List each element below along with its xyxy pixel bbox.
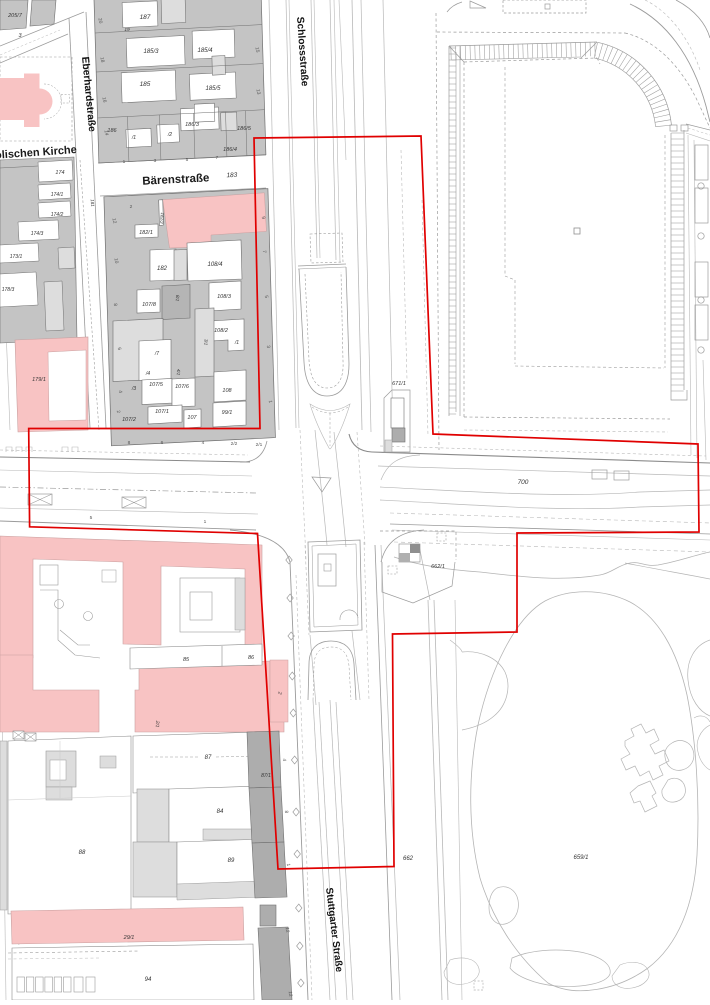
- svg-text:108/2: 108/2: [214, 328, 228, 334]
- svg-text:178/3: 178/3: [2, 287, 15, 293]
- svg-text:/7: /7: [154, 351, 159, 357]
- svg-text:2/1: 2/1: [154, 720, 161, 728]
- svg-text:29/1: 29/1: [123, 935, 135, 941]
- svg-text:107/5: 107/5: [149, 382, 164, 388]
- svg-text:6: 6: [161, 440, 164, 446]
- svg-text:659/1: 659/1: [573, 855, 588, 861]
- svg-text:186/5: 186/5: [237, 126, 252, 132]
- svg-text:181: 181: [90, 199, 95, 207]
- svg-text:7: 7: [216, 155, 219, 161]
- svg-text:2: 2: [130, 204, 133, 210]
- svg-text:94: 94: [145, 977, 152, 983]
- svg-text:3: 3: [154, 158, 157, 164]
- svg-text:4/1: 4/1: [176, 369, 182, 376]
- svg-text:173/1: 173/1: [10, 254, 23, 260]
- svg-text:107/8: 107/8: [142, 302, 157, 308]
- svg-text:182/1: 182/1: [139, 230, 153, 236]
- svg-text:183: 183: [226, 172, 238, 180]
- svg-text:174/1: 174/1: [51, 192, 64, 198]
- svg-text:12: 12: [284, 927, 290, 933]
- svg-text:174: 174: [55, 170, 64, 176]
- svg-text:108: 108: [222, 388, 232, 394]
- svg-text:182/2: 182/2: [159, 212, 165, 224]
- svg-text:174/2: 174/2: [51, 212, 64, 218]
- svg-text:/1: /1: [234, 340, 239, 346]
- svg-text:108/4: 108/4: [207, 262, 223, 268]
- svg-text:187: 187: [140, 14, 151, 21]
- svg-text:186/3: 186/3: [185, 122, 200, 128]
- svg-text:/4: /4: [145, 371, 150, 377]
- svg-text:8/1: 8/1: [175, 295, 181, 302]
- svg-text:84: 84: [217, 809, 224, 815]
- svg-text:185/4: 185/4: [197, 48, 213, 54]
- svg-text:662: 662: [403, 856, 414, 862]
- svg-text:174/3: 174/3: [31, 231, 44, 237]
- svg-text:/3: /3: [131, 386, 136, 392]
- svg-text:3/1: 3/1: [203, 339, 209, 346]
- svg-text:1: 1: [204, 519, 207, 525]
- svg-text:4: 4: [202, 440, 205, 446]
- svg-text:5: 5: [90, 515, 93, 521]
- svg-text:662/1: 662/1: [431, 564, 445, 570]
- svg-text:89: 89: [228, 858, 235, 864]
- svg-text:12: 12: [287, 991, 293, 997]
- svg-text:/1: /1: [131, 135, 136, 141]
- svg-text:2/2: 2/2: [231, 441, 238, 447]
- svg-text:108/3: 108/3: [217, 294, 232, 300]
- svg-text:205/7: 205/7: [7, 13, 23, 19]
- svg-text:185/5: 185/5: [205, 86, 221, 92]
- svg-text:185/3: 185/3: [143, 49, 159, 55]
- svg-text:2/1: 2/1: [256, 442, 263, 448]
- svg-text:107/1: 107/1: [155, 409, 169, 415]
- svg-text:85: 85: [183, 657, 190, 663]
- svg-text:182: 182: [157, 266, 168, 272]
- svg-text:179/1: 179/1: [32, 377, 46, 383]
- svg-text:107: 107: [187, 415, 197, 421]
- svg-text:107/2: 107/2: [122, 417, 136, 423]
- svg-text:99/1: 99/1: [222, 410, 233, 416]
- svg-text:8: 8: [128, 440, 131, 446]
- svg-text:1: 1: [123, 159, 126, 165]
- svg-text:185: 185: [140, 81, 151, 88]
- svg-text:87: 87: [205, 755, 212, 761]
- svg-text:19: 19: [124, 27, 130, 33]
- svg-text:5: 5: [186, 157, 189, 163]
- svg-text:107/6: 107/6: [175, 384, 190, 390]
- svg-text:/2: /2: [167, 132, 172, 138]
- svg-text:186/4: 186/4: [223, 147, 237, 153]
- svg-text:88: 88: [79, 850, 86, 856]
- svg-text:700: 700: [518, 479, 529, 486]
- svg-text:86: 86: [248, 655, 255, 661]
- svg-text:671/1: 671/1: [392, 381, 406, 387]
- svg-text:87/1: 87/1: [261, 773, 271, 779]
